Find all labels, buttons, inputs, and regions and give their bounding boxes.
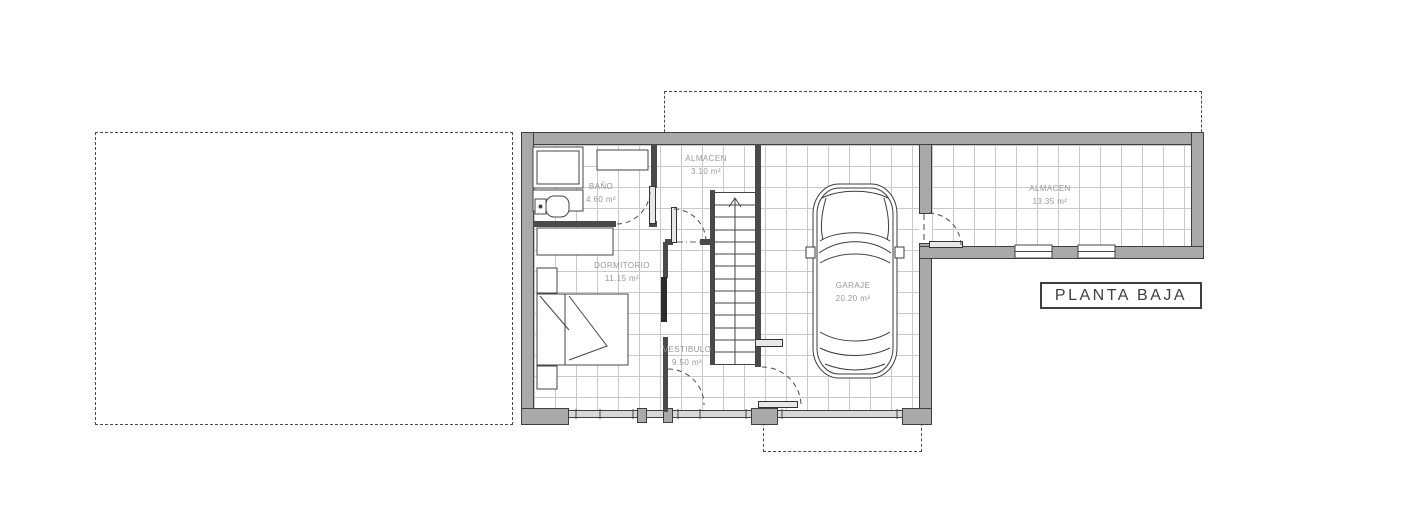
room-area: 11.15 m² — [594, 272, 650, 285]
door-leaf-almacen — [671, 207, 677, 243]
partition-garage-left — [755, 144, 761, 367]
title-block: PLANTA BAJA — [1040, 282, 1202, 309]
drawing-title: PLANTA BAJA — [1055, 287, 1187, 305]
facade-window-band — [569, 410, 902, 418]
room-area: 9.50 m² — [663, 356, 712, 369]
wall-top — [521, 132, 1204, 145]
room-name: DORMITORIO — [594, 259, 650, 272]
wall-left — [521, 132, 534, 425]
door-leaf-garage-step — [737, 339, 783, 347]
room-area: 3.10 m² — [685, 165, 726, 178]
room-area: 20.20 m² — [836, 292, 871, 305]
plot-outline-left — [95, 132, 513, 425]
room-label-vestibulo: VESTIBULO 9.50 m² — [663, 343, 712, 369]
room-name: BAÑO — [586, 180, 616, 193]
facade-pier-entrance — [751, 408, 778, 425]
room-label-dormitorio: DORMITORIO 11.15 m² — [594, 259, 650, 285]
partition-stair-left — [710, 190, 715, 365]
facade-pier-small-1 — [637, 408, 647, 423]
sliding-door-panel — [661, 277, 667, 322]
plot-outline-top — [664, 91, 1202, 137]
room-name: ALMACEN — [685, 152, 726, 165]
room-label-bano: BAÑO 4.60 m² — [586, 180, 616, 206]
partition-dormitorio-right-a — [663, 242, 668, 278]
door-leaf-entrance — [758, 401, 798, 408]
partition-bano-right — [651, 144, 657, 188]
facade-pier-corner-right — [902, 408, 932, 425]
room-label-almacen-1: ALMACEN 3.10 m² — [685, 152, 726, 178]
wall-right-upper — [919, 144, 932, 214]
room-area: 4.60 m² — [586, 193, 616, 206]
room-name: GARAJE — [836, 279, 871, 292]
floor-plan-drawing: BAÑO 4.60 m² ALMACEN 3.10 m² DORMITORIO … — [0, 0, 1412, 505]
wall-wing-right — [1191, 132, 1204, 258]
room-label-garaje: GARAJE 20.20 m² — [836, 279, 871, 305]
door-leaf-bano — [649, 186, 656, 224]
plot-outline-bottom — [763, 412, 922, 452]
door-leaf-wing — [929, 241, 963, 248]
partition-bano-bottom — [533, 221, 616, 227]
room-name: VESTIBULO — [663, 343, 712, 356]
room-label-almacen-2: ALMACEN 13.35 m² — [1029, 182, 1070, 208]
room-area: 13.35 m² — [1029, 195, 1070, 208]
room-name: ALMACEN — [1029, 182, 1070, 195]
facade-pier-corner-left — [521, 408, 569, 425]
wall-right-lower — [919, 243, 932, 425]
